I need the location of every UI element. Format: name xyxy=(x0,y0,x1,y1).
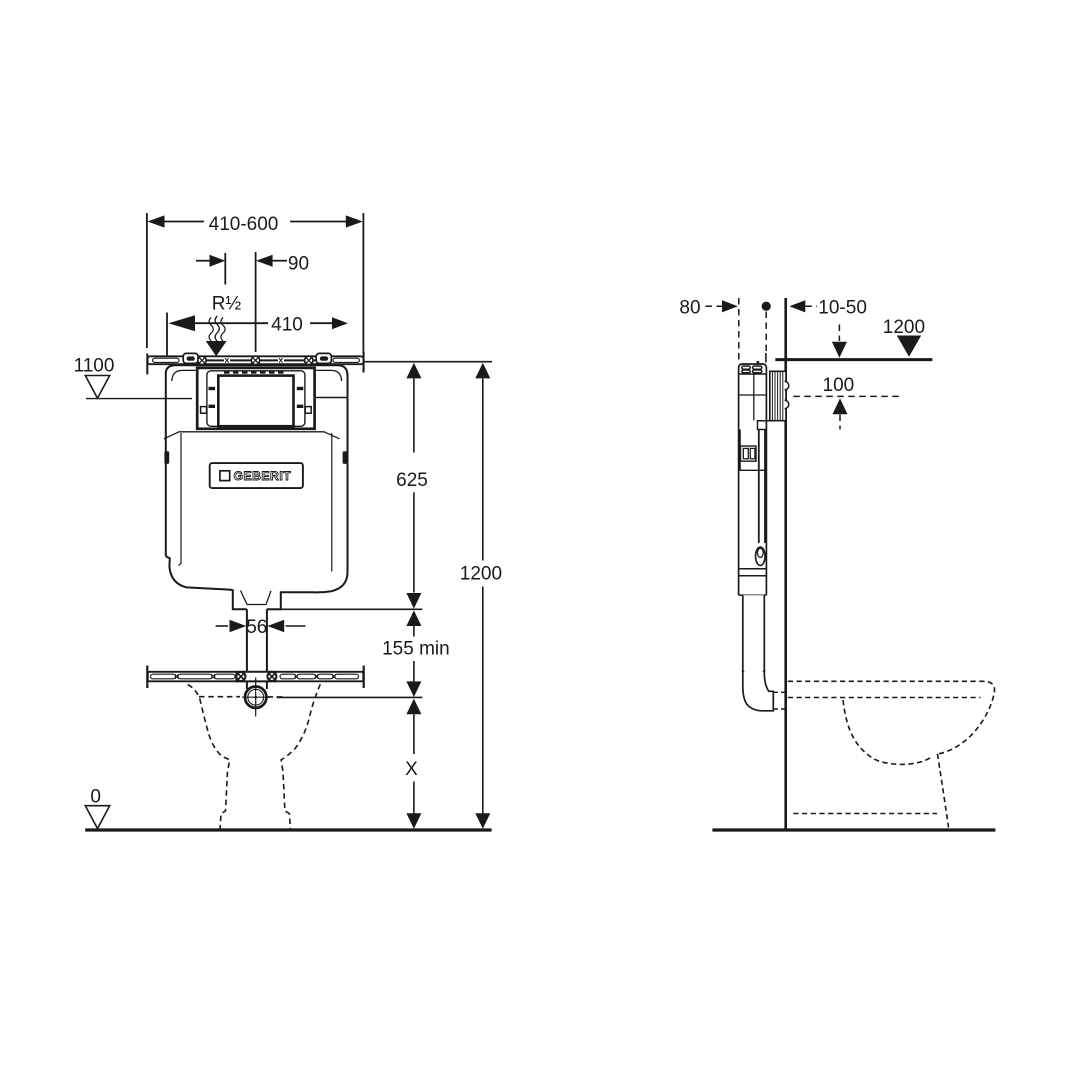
svg-text:X: X xyxy=(405,759,418,780)
svg-text:410: 410 xyxy=(271,315,303,336)
svg-text:R½: R½ xyxy=(212,293,242,314)
svg-text:GEBERIT: GEBERIT xyxy=(234,469,292,483)
svg-text:56: 56 xyxy=(246,617,267,638)
svg-text:80: 80 xyxy=(679,298,700,319)
svg-text:0: 0 xyxy=(90,786,101,807)
svg-text:1200: 1200 xyxy=(883,317,925,338)
svg-text:155 min: 155 min xyxy=(382,639,450,660)
svg-text:90: 90 xyxy=(288,253,309,274)
svg-text:625: 625 xyxy=(396,470,428,491)
svg-text:410-600: 410-600 xyxy=(209,214,279,235)
svg-text:10-50: 10-50 xyxy=(818,297,867,318)
svg-text:1100: 1100 xyxy=(74,356,115,377)
svg-text:100: 100 xyxy=(823,375,855,396)
svg-text:1200: 1200 xyxy=(460,564,502,585)
